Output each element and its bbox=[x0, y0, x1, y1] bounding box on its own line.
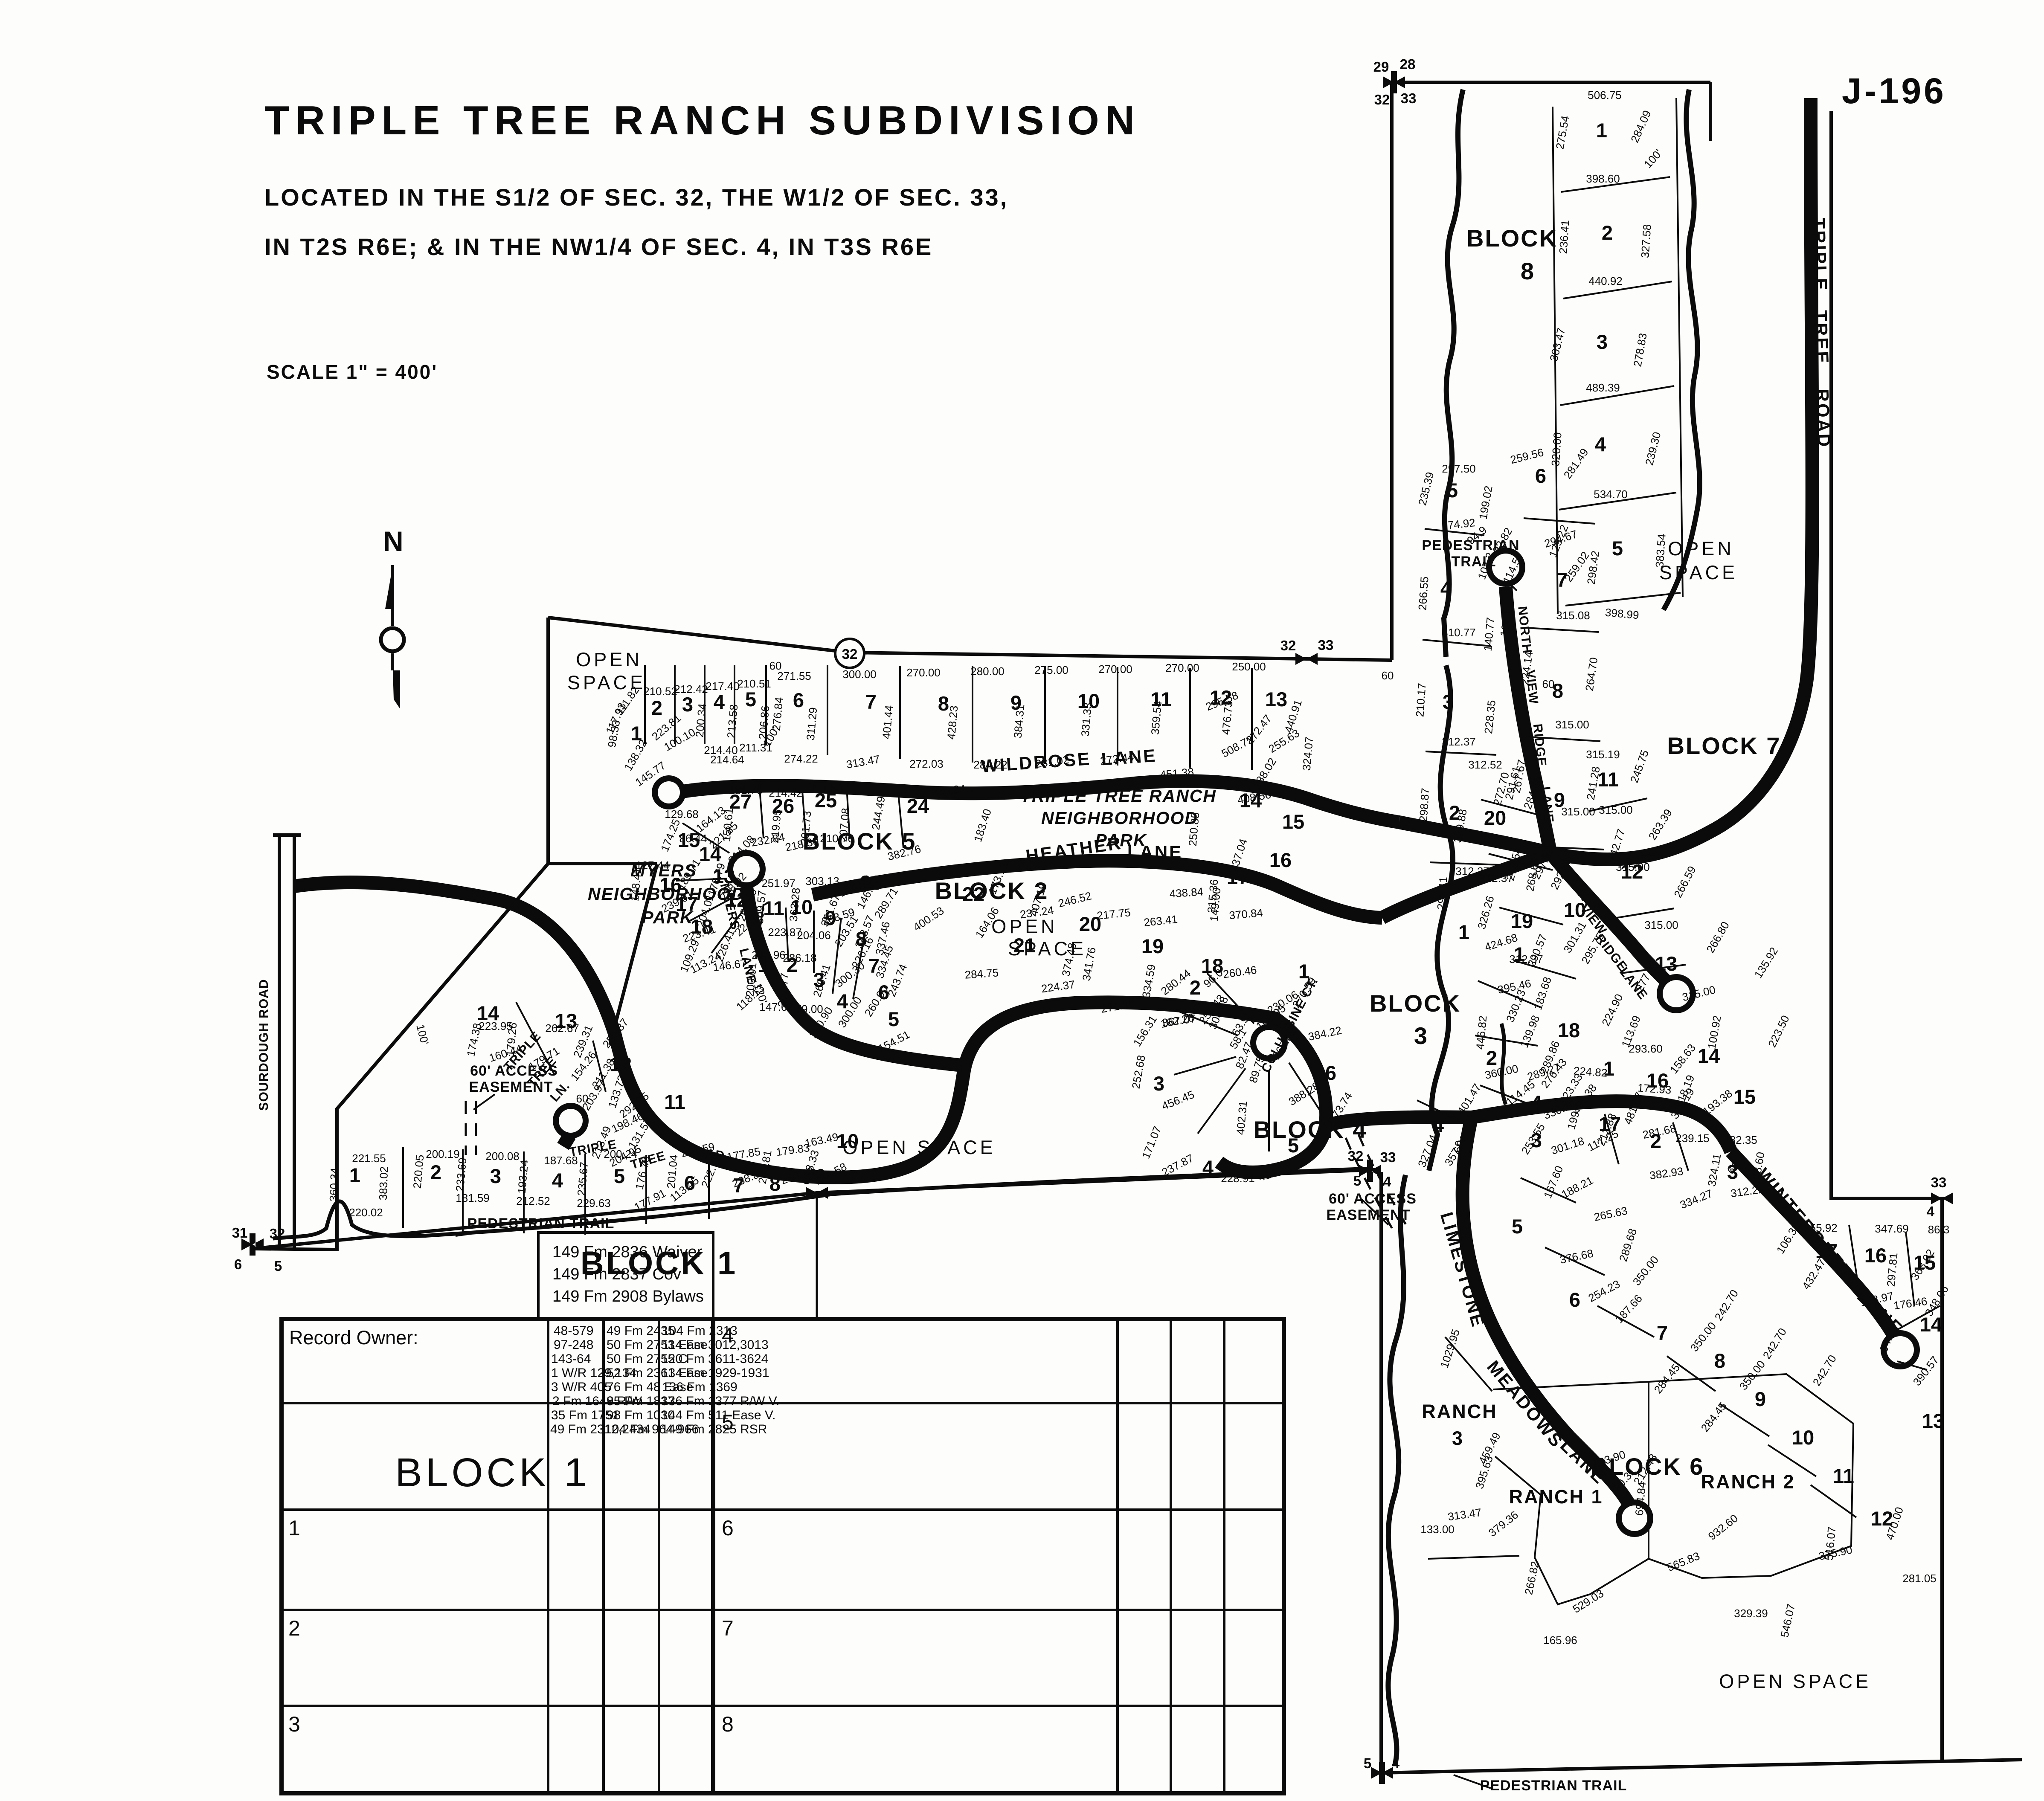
table-row-label: 2 bbox=[288, 1616, 300, 1640]
dimension-label: 217.75 bbox=[1096, 906, 1131, 922]
recording-entry: 97-248 bbox=[554, 1338, 593, 1352]
ranch-label: RANCH 2 bbox=[1701, 1471, 1795, 1493]
corner-number: 4 bbox=[1383, 1174, 1391, 1189]
note-label: EASEMENT bbox=[1327, 1207, 1411, 1223]
lot-number: 6 bbox=[793, 689, 804, 711]
lot-number: 24 bbox=[907, 795, 929, 817]
dimension-label: 259.56 bbox=[1509, 446, 1545, 466]
dimension-label: 446.82 bbox=[1474, 1015, 1489, 1050]
lot-number: 2 bbox=[651, 696, 662, 719]
dimension-label: 284.22 bbox=[973, 758, 1007, 771]
lot-number: 11 bbox=[664, 1090, 685, 1113]
dimension-label: 282.35 bbox=[1723, 1134, 1757, 1146]
dimension-label: 242.70 bbox=[1712, 1288, 1741, 1323]
recording-entry: 48-579 bbox=[554, 1324, 593, 1338]
lot-number: 15 bbox=[1282, 810, 1304, 833]
recording-entry: 120 Fm 3611-3624 bbox=[661, 1352, 768, 1366]
dimension-label: 138.32 bbox=[621, 737, 650, 773]
lot-number: 1 bbox=[349, 1164, 360, 1186]
dimension-label: 263.41 bbox=[1143, 913, 1178, 929]
park-label: NEIGHBORHOOD bbox=[1041, 808, 1198, 828]
dimension-label: 398.99 bbox=[1605, 606, 1640, 622]
lot-number: 13 bbox=[1265, 688, 1287, 711]
lot-number: 15 bbox=[1733, 1085, 1756, 1108]
dimension-label: 100' bbox=[1641, 147, 1665, 171]
dimension-label: 456.45 bbox=[1160, 1088, 1196, 1113]
dimension-label: 280.00 bbox=[970, 665, 1005, 678]
dimension-label: 315.08 bbox=[1556, 609, 1590, 622]
park-label: TRIPLE TREE RANCH bbox=[1020, 786, 1217, 806]
dimension-label: 217.40 bbox=[706, 680, 740, 693]
recording-note: 149 Fm 2836 Waiver bbox=[552, 1243, 703, 1261]
dimension-label: 163.49 bbox=[804, 1130, 839, 1150]
dimension-label: 181.59 bbox=[456, 1192, 490, 1204]
dimension-label: 331.33 bbox=[1079, 702, 1095, 737]
street-name: TRIPLE bbox=[1809, 218, 1831, 292]
street-name: TREE bbox=[1811, 310, 1832, 365]
dimension-label: 60 bbox=[1451, 1140, 1466, 1154]
dimension-label: 355.92 bbox=[1803, 1221, 1838, 1234]
dimension-label: 546.07 bbox=[1778, 1603, 1797, 1639]
lot-number: 5 bbox=[1512, 1215, 1523, 1238]
location-line-2: IN T2S R6E; & IN THE NW1/4 OF SEC. 4, IN… bbox=[264, 233, 933, 260]
dimension-label: 360.34 bbox=[327, 1167, 341, 1202]
dimension-label: 367.07 bbox=[1161, 1012, 1196, 1030]
plat-sheet: { "header": { "title": "TRIPLE TREE RANC… bbox=[0, 0, 2044, 1801]
area-label: SPACE bbox=[1793, 1670, 1871, 1692]
corner-number: 33 bbox=[1318, 637, 1334, 653]
dimension-label: 165.96 bbox=[1543, 1634, 1577, 1647]
dimension-label: 106.33 bbox=[1774, 1221, 1803, 1256]
lot-number: 21 bbox=[1013, 934, 1036, 957]
dimension-label: 438.84 bbox=[1169, 885, 1204, 900]
lot-number: 6 bbox=[1325, 1061, 1336, 1084]
dimension-label: 228.35 bbox=[1482, 699, 1498, 734]
note-label: PEDESTRIAN TRAIL bbox=[467, 1215, 615, 1232]
block-label: BLOCK 7 bbox=[1667, 732, 1781, 759]
dimension-label: 270.00 bbox=[1098, 663, 1132, 676]
dimension-label: 204.06 bbox=[797, 929, 831, 942]
recording-entry: 136 Fm 1369 bbox=[662, 1380, 737, 1394]
lot-number: 4 bbox=[1531, 1091, 1542, 1114]
dimension-label: 266.82 bbox=[1522, 1560, 1542, 1596]
lot-number: 7 bbox=[865, 690, 877, 713]
dimension-label: 402.31 bbox=[1234, 1100, 1250, 1135]
table-row-label: 7 bbox=[722, 1616, 734, 1640]
lot-number: 5 bbox=[1447, 479, 1458, 502]
lot-number: 4 bbox=[1595, 433, 1606, 455]
dimension-label: 263.39 bbox=[1646, 807, 1675, 842]
dimension-label: 177.85 bbox=[726, 1145, 762, 1163]
ranch-label: RANCH bbox=[1422, 1401, 1498, 1422]
dimension-label: 347.69 bbox=[1875, 1222, 1909, 1235]
table-row-label: 5 bbox=[722, 1410, 734, 1434]
dimension-label: 210.52 bbox=[643, 685, 677, 698]
dimension-label: 86.44 bbox=[679, 832, 707, 845]
dimension-label: 241.28 bbox=[1584, 766, 1602, 801]
dimension-label: 171.07 bbox=[1139, 1124, 1164, 1160]
dimension-label: 236.41 bbox=[1556, 220, 1571, 254]
dimension-label: 310.77 bbox=[1442, 626, 1476, 639]
recording-entry: 136 Fm 1377 R/W V. bbox=[661, 1394, 779, 1408]
dimension-label: 272.03 bbox=[909, 757, 944, 770]
record-owner-label: Record Owner: bbox=[289, 1327, 418, 1349]
dimension-label: 187.68 bbox=[544, 1154, 578, 1167]
lot-number: 1 bbox=[1596, 119, 1607, 142]
sheet-number: J-196 bbox=[1842, 71, 1946, 111]
dimension-label: 384.22 bbox=[1307, 1024, 1343, 1043]
dimension-label: 129.68 bbox=[665, 808, 699, 821]
dimension-label: 140.77 bbox=[1481, 617, 1497, 652]
dimension-label: 242.70 bbox=[1760, 1326, 1789, 1361]
dimension-label: 284.75 bbox=[964, 966, 999, 981]
dimension-label: 211.53 bbox=[810, 782, 843, 795]
corner-marker bbox=[1295, 653, 1318, 665]
dimension-label: 242.70 bbox=[1810, 1353, 1839, 1388]
dimension-label: 312.22 bbox=[1730, 1183, 1765, 1200]
dimension-label: 147.63 bbox=[759, 1001, 793, 1013]
lot-number: 4 bbox=[552, 1169, 563, 1192]
lot-number: 10 bbox=[1564, 899, 1586, 921]
area-label: OPEN bbox=[1668, 538, 1734, 560]
dimension-label: 210.76 bbox=[820, 832, 854, 845]
dimension-label: 370.84 bbox=[1228, 906, 1263, 922]
dimension-label: 383.54 bbox=[1653, 534, 1668, 568]
corner-number: 28 bbox=[1400, 56, 1416, 72]
corner-number: 5 bbox=[274, 1258, 282, 1274]
dimension-label: 176.46 bbox=[1893, 1295, 1928, 1312]
dimension-label: 329.39 bbox=[1734, 1607, 1768, 1620]
dimension-label: 271.55 bbox=[777, 670, 811, 682]
dimension-label: 281.05 bbox=[1902, 1572, 1937, 1585]
dimension-label: 135.92 bbox=[1752, 945, 1781, 980]
dimension-label: 193.38 bbox=[1700, 1087, 1735, 1118]
dimension-label: 183.68 bbox=[1531, 975, 1554, 1012]
dimension-label: 270.00 bbox=[1165, 661, 1199, 674]
lot-number: 19 bbox=[1141, 935, 1164, 957]
dimension-label: 334.59 bbox=[1139, 963, 1158, 999]
corner-number: 32 bbox=[1374, 92, 1390, 107]
dimension-label: 350.00 bbox=[1688, 1320, 1719, 1354]
note-label: EASEMENT bbox=[469, 1079, 553, 1095]
dimension-label: 383.02 bbox=[377, 1166, 391, 1201]
scale-label: SCALE 1" = 400' bbox=[267, 361, 438, 383]
dimension-label: 187.66 bbox=[1613, 1292, 1645, 1325]
corner-number: 4 bbox=[1927, 1204, 1935, 1219]
dimension-label: 100' bbox=[414, 1023, 431, 1046]
dimension-label: 275.00 bbox=[1034, 664, 1068, 676]
lot-number: 2 bbox=[1602, 221, 1613, 244]
dimension-label: 384.31 bbox=[1011, 704, 1027, 739]
lot-number: 8 bbox=[769, 1172, 781, 1195]
dimension-label: 214.42 bbox=[769, 786, 803, 799]
lot-number: 3 bbox=[682, 693, 693, 716]
dimension-label: 440.92 bbox=[1588, 275, 1623, 287]
recording-note: 149 Fm 2908 Bylaws bbox=[552, 1288, 704, 1305]
dimension-label: 382.93 bbox=[1649, 1165, 1684, 1182]
table-row-label: 8 bbox=[722, 1712, 734, 1736]
dimension-label: 297.50 bbox=[1442, 462, 1476, 475]
lot-number: 22 bbox=[962, 883, 984, 905]
dimension-label: 188.21 bbox=[1559, 1174, 1595, 1201]
area-label: OPEN bbox=[576, 649, 642, 670]
recording-entry: 114 Fm 3012,3013 bbox=[662, 1338, 769, 1352]
dimension-label: 932.60 bbox=[1706, 1512, 1740, 1543]
dimension-label: 313.47 bbox=[845, 752, 881, 771]
dimension-label: 289.68 bbox=[1617, 1227, 1639, 1263]
corner-number: 33 bbox=[1931, 1175, 1947, 1190]
recording-note: 149 Fm 2837 Cov bbox=[552, 1265, 681, 1283]
dimension-label: 315.00 bbox=[1616, 861, 1650, 873]
dimension-label: 315.19 bbox=[1586, 748, 1620, 761]
dimension-label: 508.72 bbox=[1219, 733, 1255, 760]
dimension-label: 213.58 bbox=[725, 704, 740, 739]
dimension-label: 223.50 bbox=[1765, 1013, 1792, 1050]
dimension-label: 284.09 bbox=[1628, 108, 1654, 145]
lot-number: 19 bbox=[1511, 910, 1533, 932]
dimension-label: 312.37 bbox=[1479, 872, 1513, 885]
dimension-label: 60 bbox=[576, 1092, 589, 1105]
block-label: BLOCK 4 bbox=[1254, 1116, 1368, 1143]
lot-number: 4 bbox=[1440, 577, 1452, 600]
dimension-label: 266.55 bbox=[1416, 576, 1431, 611]
dimension-label: 221.55 bbox=[352, 1152, 386, 1165]
dimension-label: 428.23 bbox=[945, 705, 961, 740]
lot-number: 7 bbox=[1657, 1322, 1668, 1344]
lot-number: 4 bbox=[1202, 1156, 1214, 1179]
dimension-label: 139.98 bbox=[1518, 1013, 1542, 1050]
lot-number: 2 bbox=[430, 1161, 441, 1183]
dimension-label: 320.00 bbox=[1549, 432, 1564, 467]
dimension-label: 224.90 bbox=[1599, 992, 1626, 1028]
dimension-label: 334.27 bbox=[1678, 1187, 1714, 1212]
dimension-label: 156.31 bbox=[1131, 1013, 1160, 1049]
lot-number: 3 bbox=[1443, 690, 1454, 713]
dimension-label: 303.13 bbox=[805, 875, 839, 887]
dimension-label: 252.68 bbox=[1129, 1054, 1147, 1090]
lot-number: 9 bbox=[1755, 1388, 1766, 1410]
dimension-label: 244.49 bbox=[869, 795, 887, 831]
lot-number: 13 bbox=[1922, 1409, 1944, 1432]
dimension-label: 376.68 bbox=[1559, 1247, 1594, 1266]
lot-number: 4 bbox=[714, 690, 725, 713]
dimension-label: 432.47 bbox=[1800, 1256, 1829, 1292]
block-label: 8 bbox=[1521, 258, 1535, 284]
dimension-label: 100.92 bbox=[1705, 1015, 1723, 1050]
dimension-label: 214.64 bbox=[710, 753, 744, 766]
dimension-label: 324.07 bbox=[1300, 736, 1316, 771]
dimension-label: 312.52 bbox=[1468, 758, 1502, 771]
recording-entry: 134 Fm 1929-1931 bbox=[661, 1366, 769, 1380]
corner-number: 32 bbox=[1348, 1148, 1364, 1164]
lot-number: 2 bbox=[1486, 1047, 1497, 1069]
dimension-label: 212.42 bbox=[674, 683, 708, 696]
dimension-label: 265.63 bbox=[1593, 1204, 1629, 1224]
dimension-label: 229.63 bbox=[577, 1197, 611, 1209]
dimension-label: 534.70 bbox=[1594, 488, 1628, 501]
dimension-label: 297.81 bbox=[1884, 1252, 1900, 1287]
lot-number: 2 bbox=[1190, 976, 1201, 999]
lot-number: 6 bbox=[1569, 1288, 1580, 1311]
table-row-label: 4 bbox=[722, 1323, 734, 1347]
dimension-label: 235.39 bbox=[1416, 471, 1436, 507]
dimension-label: 315.00 bbox=[1644, 919, 1678, 931]
north-arrow: N bbox=[381, 525, 404, 709]
recording-entry: 149 Fm 2825 RSR bbox=[661, 1422, 767, 1436]
dimension-label: 254.23 bbox=[1586, 1277, 1622, 1305]
corner-number: 33 bbox=[1380, 1149, 1396, 1165]
dimension-label: 565.83 bbox=[1665, 1549, 1701, 1574]
dimension-label: 315.00 bbox=[1561, 805, 1595, 818]
dimension-label: 324.11 bbox=[1705, 1153, 1724, 1188]
area-label: OPEN bbox=[1719, 1670, 1786, 1692]
table-row-label: 1 bbox=[288, 1516, 300, 1540]
lot-number: 5 bbox=[888, 1008, 899, 1030]
dimension-label: 86.3 bbox=[1928, 1223, 1950, 1236]
area-label: OPEN SPACE bbox=[842, 1137, 996, 1158]
dimension-label: 379.36 bbox=[1486, 1508, 1521, 1540]
dimension-label: 228.91 bbox=[1221, 1172, 1255, 1185]
dimension-label: 313.47 bbox=[1447, 1506, 1482, 1523]
dimension-label: 312.37 bbox=[1442, 735, 1476, 748]
corner-number: 5 bbox=[1353, 1173, 1361, 1189]
dimension-label: 233.69 bbox=[453, 1157, 469, 1192]
dimension-label: 326.26 bbox=[1475, 894, 1497, 931]
lot-number: 16 bbox=[1269, 849, 1292, 871]
dimension-label: 262.67 bbox=[545, 1022, 579, 1035]
dimension-label: 220.02 bbox=[349, 1206, 383, 1219]
dimension-label: 250.00 bbox=[1232, 660, 1266, 673]
dimension-label: 286.18 bbox=[783, 951, 817, 964]
corner-marker bbox=[1371, 1762, 1393, 1784]
dimension-label: 311.29 bbox=[804, 707, 820, 741]
dimension-label: 183.40 bbox=[971, 807, 994, 844]
lot-number: 5 bbox=[1288, 1134, 1299, 1157]
dimension-label: 201.04 bbox=[665, 1154, 680, 1189]
dimension-label: 149.00 bbox=[1208, 887, 1223, 922]
dimension-label: 239.30 bbox=[1643, 431, 1663, 467]
corner-number: 29 bbox=[1373, 59, 1389, 75]
corner-number: 4 bbox=[1392, 1755, 1400, 1771]
dimension-label: 158.63 bbox=[1667, 1041, 1698, 1076]
corner-number: 5 bbox=[1364, 1755, 1371, 1771]
dimension-label: 245.75 bbox=[1628, 748, 1651, 784]
dimension-label: 266.80 bbox=[1704, 919, 1732, 955]
table-block-label: BLOCK 1 bbox=[395, 1450, 590, 1495]
dimension-label: 193.24 bbox=[515, 1159, 531, 1194]
corner-number: 31 bbox=[232, 1225, 248, 1241]
dimension-label: 275.54 bbox=[1553, 115, 1571, 151]
location-line-1: LOCATED IN THE S1/2 OF SEC. 32, THE W1/2… bbox=[264, 184, 1008, 211]
dimension-label: 235.67 bbox=[575, 1161, 591, 1196]
dimension-label: 174.38 bbox=[464, 1022, 484, 1058]
dimension-label: 293.60 bbox=[1629, 1042, 1663, 1055]
dimension-label: 200.34 bbox=[693, 703, 709, 738]
dimension-label: 301.18 bbox=[1550, 1134, 1586, 1157]
corner-number: 32 bbox=[270, 1226, 285, 1241]
dimension-label: 359.54 bbox=[1149, 700, 1164, 735]
dimension-label: 300.00 bbox=[842, 668, 877, 681]
recording-entry: 143-64 bbox=[551, 1352, 591, 1366]
dimension-label: 284.45 bbox=[1652, 1361, 1683, 1396]
park-label: PARK bbox=[1095, 830, 1147, 850]
dimension-label: 266.59 bbox=[1671, 864, 1698, 900]
dimension-label: 246.52 bbox=[1057, 889, 1093, 910]
dimension-label: 248.96 bbox=[752, 948, 786, 961]
block-label: BLOCK bbox=[1370, 990, 1461, 1017]
dimension-label: 315.00 bbox=[1555, 718, 1589, 731]
dimension-label: 529.03 bbox=[1571, 1587, 1606, 1616]
dimension-label: 298.87 bbox=[1417, 788, 1431, 822]
dimension-label: 290.57 bbox=[1525, 932, 1550, 969]
corner-number: 32 bbox=[842, 646, 858, 662]
dimension-label: 270.00 bbox=[906, 666, 941, 679]
lot-number: 3 bbox=[1153, 1072, 1164, 1095]
dimension-label: 212.52 bbox=[516, 1195, 550, 1207]
area-label: SPACE bbox=[1659, 562, 1738, 583]
dimension-label: 60 bbox=[1382, 669, 1394, 682]
street-name: SOURDOUGH ROAD bbox=[257, 979, 271, 1111]
dimension-label: 284.45 bbox=[1698, 1400, 1730, 1434]
dimension-label: 489.39 bbox=[1586, 381, 1620, 394]
lot-number: 6 bbox=[1535, 464, 1546, 487]
dimension-label: 200.08 bbox=[485, 1150, 520, 1163]
lot-number: 5 bbox=[745, 688, 756, 711]
lot-number: 10 bbox=[836, 1130, 859, 1152]
lot-number: 8 bbox=[1714, 1349, 1725, 1372]
dimension-label: 303.47 bbox=[1547, 327, 1568, 363]
lot-number: 4 bbox=[1433, 1114, 1444, 1136]
dimension-label: 181.76 bbox=[729, 784, 763, 797]
dimension-label: 220.05 bbox=[411, 1154, 427, 1189]
dimension-label: 200.24 bbox=[604, 1148, 638, 1160]
dimension-label: 199.02 bbox=[1476, 485, 1495, 521]
corner-number: 33 bbox=[1401, 90, 1417, 106]
ranch-label: 3 bbox=[1452, 1427, 1464, 1449]
table-row-label: 6 bbox=[722, 1516, 734, 1540]
dimension-label: 281.49 bbox=[1561, 446, 1591, 481]
dimension-label: 60 bbox=[1542, 678, 1555, 690]
dimension-label: 224.37 bbox=[1040, 978, 1076, 995]
dimension-label: 210.51 bbox=[737, 677, 771, 690]
dimension-label: 299.11 bbox=[1434, 876, 1449, 910]
boundary-lines bbox=[253, 82, 2022, 1773]
dimension-label: 398.60 bbox=[1586, 172, 1620, 185]
dimension-label: 210.17 bbox=[1413, 683, 1428, 717]
ranch-label: RANCH 1 bbox=[1509, 1486, 1603, 1508]
dimension-label: 133.00 bbox=[1420, 1523, 1455, 1536]
corner-number: 32 bbox=[1280, 638, 1296, 653]
lot-number: 10 bbox=[1792, 1426, 1814, 1449]
dimension-label: 315.00 bbox=[1599, 803, 1633, 816]
dimension-label: 278.83 bbox=[1631, 332, 1649, 368]
dimension-label: 401.44 bbox=[880, 705, 896, 740]
dimension-label: 506.75 bbox=[1588, 89, 1622, 102]
table-row-label: 3 bbox=[288, 1712, 300, 1736]
recording-entry: 144 Fm 511 Ease V. bbox=[661, 1408, 776, 1422]
dimension-label: 280.44 bbox=[1158, 967, 1193, 998]
dimension-label: 200.19 bbox=[426, 1148, 460, 1160]
dimension-label: 350.00 bbox=[1630, 1253, 1661, 1288]
plat-map: TRIPLE TREE RANCH SUBDIVISION LOCATED IN… bbox=[0, 0, 2044, 1801]
dimension-label: 250.85 bbox=[1186, 812, 1202, 847]
dimension-label: 179.00 bbox=[789, 1003, 823, 1015]
dimension-label: 327.58 bbox=[1638, 224, 1653, 258]
lot-number: 1 bbox=[1458, 921, 1469, 943]
lot-number: 3 bbox=[1597, 331, 1608, 353]
dimension-label: 400.53 bbox=[911, 904, 947, 934]
page-title: TRIPLE TREE RANCH SUBDIVISION bbox=[264, 98, 1141, 143]
